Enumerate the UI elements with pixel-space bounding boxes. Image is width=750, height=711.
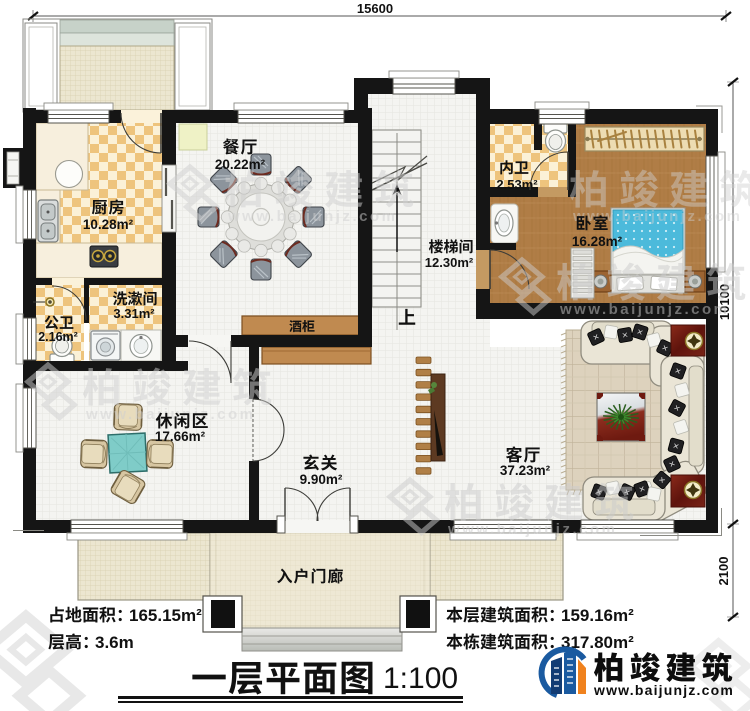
svg-text:37.23m²: 37.23m² <box>500 463 551 478</box>
svg-text:3.6m: 3.6m <box>95 633 134 652</box>
svg-text:www.baijunjz.com: www.baijunjz.com <box>447 521 617 538</box>
svg-text:15600: 15600 <box>357 1 393 16</box>
svg-text:9.90m²: 9.90m² <box>300 472 343 487</box>
svg-text:165.15m²: 165.15m² <box>129 606 202 625</box>
svg-text:1:100: 1:100 <box>383 662 458 695</box>
svg-text:2100: 2100 <box>716 557 731 586</box>
svg-text:2.53m²: 2.53m² <box>496 177 538 192</box>
svg-text:3.31m²: 3.31m² <box>113 306 155 321</box>
svg-text:12.30m²: 12.30m² <box>425 255 474 270</box>
svg-text:20.22m²: 20.22m² <box>215 157 266 172</box>
svg-text:www.baijunjz.com: www.baijunjz.com <box>85 406 255 423</box>
svg-text:16.28m²: 16.28m² <box>572 234 623 249</box>
svg-text:www.baijunjz.com: www.baijunjz.com <box>227 208 397 225</box>
svg-text:www.baijunjz.com: www.baijunjz.com <box>593 682 734 698</box>
svg-text:2.16m²: 2.16m² <box>38 330 78 344</box>
svg-text:159.16m²: 159.16m² <box>561 606 634 625</box>
svg-text:10.28m²: 10.28m² <box>83 217 134 232</box>
svg-text:www.baijunjz.com: www.baijunjz.com <box>559 301 729 318</box>
svg-text:17.66m²: 17.66m² <box>155 429 206 444</box>
